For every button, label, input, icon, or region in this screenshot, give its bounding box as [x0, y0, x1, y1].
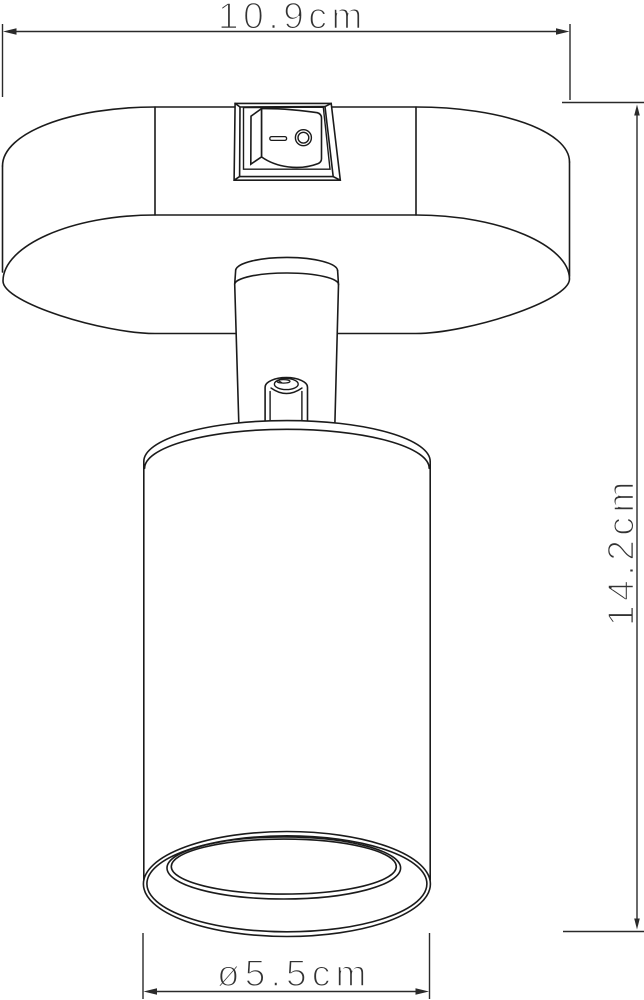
svg-text:14.2cm: 14.2cm	[601, 477, 642, 626]
svg-text:ø5.5cm: ø5.5cm	[217, 953, 372, 994]
svg-text:10.9cm: 10.9cm	[218, 0, 367, 37]
